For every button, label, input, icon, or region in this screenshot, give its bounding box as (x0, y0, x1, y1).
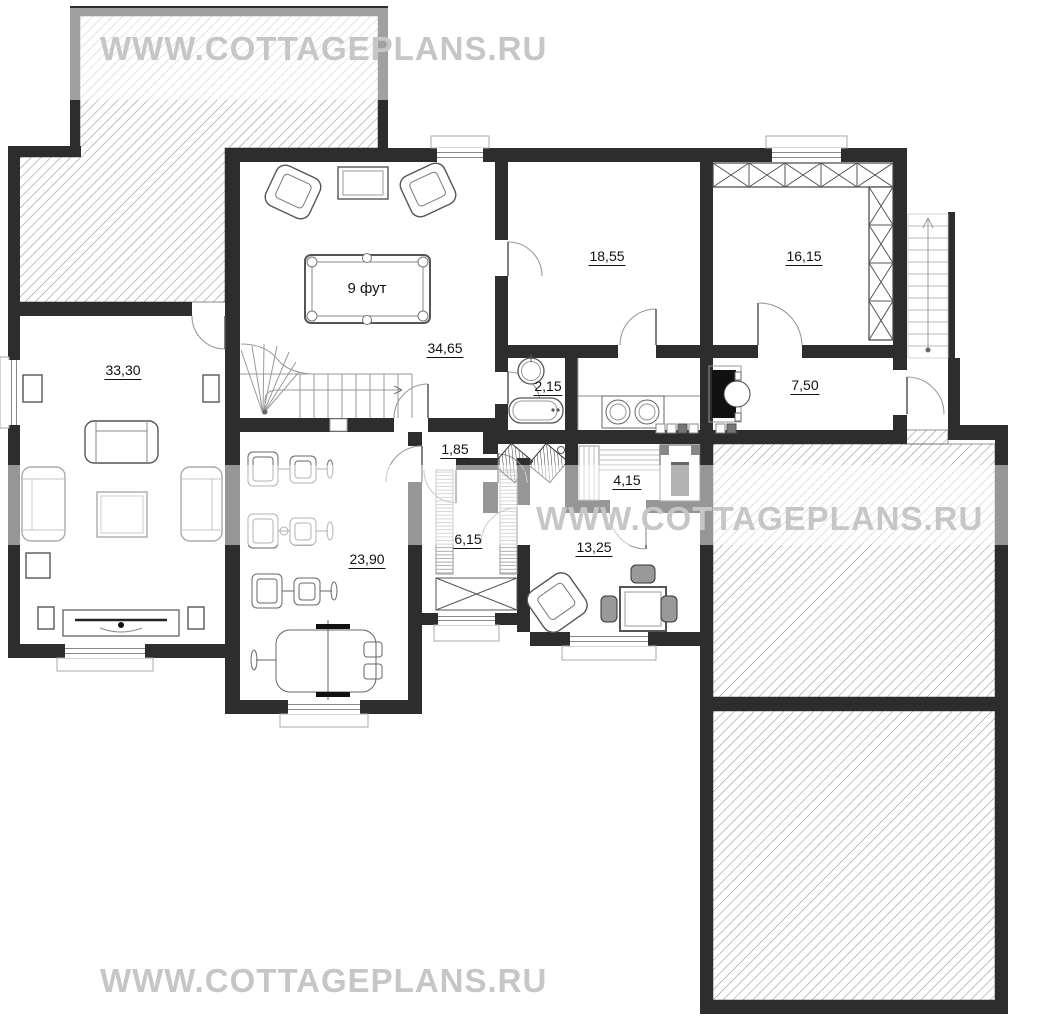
chair (631, 565, 655, 583)
armchair (523, 569, 591, 637)
door-living (192, 316, 225, 349)
chair (601, 596, 617, 622)
room-area-label-entry: 6,15 (453, 531, 482, 549)
corner-table (203, 375, 219, 402)
door-room18-south (620, 309, 656, 345)
sofa (85, 421, 158, 463)
bathtub (509, 398, 563, 423)
wall-niche (330, 419, 347, 431)
room-area-label-18: 18,55 (588, 248, 625, 266)
watermark-bottom: WWW.COTTAGEPLANS.RU (100, 962, 547, 1000)
door-room18 (508, 242, 542, 276)
gym-bench-press (251, 620, 382, 700)
room-area-label-gym: 23,90 (348, 551, 385, 569)
fireplace (709, 366, 750, 422)
speaker (38, 607, 54, 629)
entry-xbox (436, 578, 517, 610)
dining-table (620, 587, 666, 631)
room-area-label-hall: 7,50 (790, 377, 819, 395)
corner-table (26, 553, 50, 578)
room-area-label-sauna: 4,15 (612, 472, 641, 490)
sink-strip (656, 424, 736, 433)
terrace-right-lower (713, 711, 995, 1000)
room-area-label-bathroom: 2,15 (533, 378, 562, 396)
room-area-label-living: 33,30 (104, 362, 141, 380)
wardrobe-strip-top (713, 163, 893, 187)
room-area-label-lounge: 13,25 (575, 539, 612, 557)
wardrobe-strip-right (869, 187, 893, 340)
stove-burners (602, 396, 664, 428)
room-area-label-billiard: 34,65 (426, 340, 463, 358)
door-room16 (758, 303, 802, 345)
watermark-top: WWW.COTTAGEPLANS.RU (100, 30, 547, 68)
chair (661, 596, 677, 622)
tv-console (63, 610, 179, 636)
armchair (262, 162, 324, 222)
shower-drain (558, 447, 565, 454)
armchair (397, 160, 459, 220)
door-vestibule (907, 377, 944, 414)
watermark-middle: WWW.COTTAGEPLANS.RU (536, 500, 983, 538)
speaker (188, 607, 204, 629)
side-table (338, 167, 388, 199)
corner-table (23, 375, 42, 402)
floor-plan-canvas: WWW.COTTAGEPLANS.RU WWW.COTTAGEPLANS.RU … (0, 0, 1062, 1035)
billiard-table-label: 9 фут (346, 280, 387, 298)
exterior-stairs (908, 214, 948, 358)
room-area-label-16: 16,15 (785, 248, 822, 266)
room-area-label-corridor: 1,85 (440, 441, 469, 459)
interior-stairs (240, 344, 412, 418)
gym-machine (252, 574, 337, 608)
